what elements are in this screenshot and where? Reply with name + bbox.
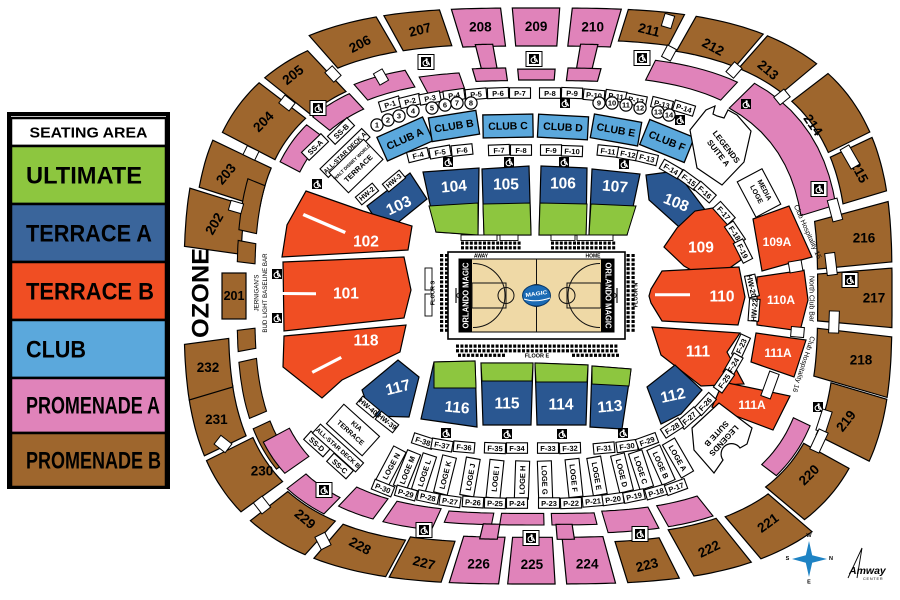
- svg-text:P-22: P-22: [563, 499, 579, 509]
- svg-text:8: 8: [469, 99, 473, 108]
- svg-text:P-6: P-6: [492, 89, 504, 98]
- svg-text:P-24: P-24: [509, 499, 526, 508]
- svg-text:12: 12: [636, 104, 644, 113]
- svg-text:230: 230: [251, 464, 274, 479]
- svg-text:CLUB D: CLUB D: [543, 120, 584, 134]
- svg-text:N: N: [829, 556, 833, 562]
- svg-text:13: 13: [654, 108, 662, 117]
- svg-text:LOGE H: LOGE H: [518, 465, 528, 494]
- svg-text:FLOOR N: FLOOR N: [634, 283, 640, 308]
- svg-text:F-11: F-11: [600, 146, 616, 157]
- svg-text:116: 116: [444, 398, 471, 417]
- svg-text:111A: 111A: [738, 398, 766, 412]
- svg-text:P-21: P-21: [585, 496, 602, 506]
- svg-text:224: 224: [576, 557, 599, 572]
- svg-text:CENTER: CENTER: [863, 577, 883, 581]
- svg-text:113: 113: [597, 397, 624, 416]
- svg-text:North Club Bar: North Club Bar: [808, 276, 815, 323]
- svg-text:101: 101: [333, 286, 359, 303]
- svg-text:PROMENADE B: PROMENADE B: [26, 448, 161, 475]
- svg-text:110: 110: [709, 289, 734, 306]
- svg-text:F-7: F-7: [493, 146, 505, 155]
- svg-text:F-35: F-35: [487, 444, 503, 454]
- svg-text:232: 232: [197, 360, 220, 375]
- svg-text:F-9: F-9: [545, 146, 556, 155]
- svg-text:11: 11: [622, 101, 630, 110]
- svg-text:CLUB: CLUB: [26, 337, 86, 364]
- svg-text:HOME: HOME: [586, 254, 602, 260]
- svg-text:111: 111: [686, 344, 711, 361]
- svg-text:109: 109: [688, 240, 714, 257]
- svg-text:6: 6: [443, 101, 447, 110]
- svg-text:JERNIGAN’S: JERNIGAN’S: [254, 275, 261, 312]
- svg-text:208: 208: [469, 20, 492, 35]
- svg-text:231: 231: [205, 412, 228, 427]
- svg-text:LOGE G: LOGE G: [539, 465, 549, 495]
- svg-text:7: 7: [455, 99, 459, 108]
- svg-text:107: 107: [601, 177, 628, 196]
- svg-text:225: 225: [521, 557, 544, 572]
- svg-text:114: 114: [548, 397, 573, 414]
- svg-text:217: 217: [863, 291, 886, 306]
- svg-text:FLOOR S: FLOOR S: [431, 280, 437, 305]
- svg-text:FLOOR E: FLOOR E: [525, 354, 550, 360]
- svg-text:14: 14: [665, 111, 674, 120]
- svg-text:104: 104: [440, 177, 468, 196]
- svg-text:2: 2: [386, 116, 390, 125]
- svg-text:218: 218: [850, 353, 873, 368]
- svg-text:P-25: P-25: [487, 499, 503, 509]
- svg-text:AWAY: AWAY: [474, 254, 489, 260]
- svg-text:Amway: Amway: [848, 565, 887, 577]
- svg-text:106: 106: [550, 176, 576, 193]
- svg-text:F-10: F-10: [564, 147, 580, 157]
- svg-text:TERRACE A: TERRACE A: [26, 221, 152, 248]
- svg-text:F-32: F-32: [562, 444, 578, 454]
- svg-text:5: 5: [430, 104, 434, 113]
- svg-text:TERRACE B: TERRACE B: [26, 279, 154, 306]
- svg-text:109A: 109A: [763, 235, 792, 249]
- svg-text:111A: 111A: [764, 346, 792, 360]
- svg-text:CLUB C: CLUB C: [488, 120, 528, 133]
- svg-text:F-8: F-8: [515, 146, 526, 155]
- svg-text:ORLANDO MAGIC: ORLANDO MAGIC: [462, 262, 471, 328]
- svg-text:PROMENADE A: PROMENADE A: [26, 393, 160, 420]
- svg-text:F-36: F-36: [456, 442, 472, 452]
- svg-text:ORLANDO MAGIC: ORLANDO MAGIC: [604, 263, 613, 329]
- svg-text:P-23: P-23: [541, 499, 557, 508]
- svg-text:F-31: F-31: [596, 443, 612, 453]
- svg-text:118: 118: [353, 333, 378, 350]
- svg-text:P-9: P-9: [566, 89, 578, 98]
- svg-text:F-33: F-33: [540, 444, 555, 453]
- svg-text:W: W: [806, 533, 812, 539]
- svg-text:F-34: F-34: [509, 444, 525, 453]
- svg-text:3: 3: [397, 112, 401, 121]
- svg-text:210: 210: [581, 20, 604, 35]
- svg-text:9: 9: [597, 99, 601, 108]
- svg-text:BUD LIGHT BASELINE BAR: BUD LIGHT BASELINE BAR: [262, 253, 269, 333]
- svg-text:P-8: P-8: [544, 89, 556, 98]
- svg-text:10: 10: [608, 99, 616, 108]
- svg-text:105: 105: [493, 177, 519, 194]
- svg-text:F-5: F-5: [434, 147, 447, 158]
- svg-text:115: 115: [494, 396, 519, 413]
- svg-text:OZONE: OZONE: [188, 248, 215, 338]
- svg-text:E: E: [807, 580, 811, 586]
- svg-text:S: S: [786, 556, 790, 562]
- svg-text:HW-22: HW-22: [749, 298, 760, 322]
- svg-text:1: 1: [375, 121, 379, 130]
- svg-text:F-6: F-6: [456, 145, 468, 155]
- svg-text:209: 209: [525, 19, 548, 34]
- svg-text:226: 226: [467, 556, 490, 571]
- svg-text:102: 102: [353, 234, 379, 251]
- svg-text:P-26: P-26: [465, 497, 481, 507]
- svg-text:P-7: P-7: [514, 89, 526, 98]
- svg-text:SEATING AREA: SEATING AREA: [30, 125, 148, 142]
- svg-text:110A: 110A: [767, 293, 795, 307]
- svg-text:201: 201: [224, 289, 245, 303]
- svg-text:216: 216: [853, 231, 876, 246]
- svg-text:ULTIMATE: ULTIMATE: [26, 163, 142, 190]
